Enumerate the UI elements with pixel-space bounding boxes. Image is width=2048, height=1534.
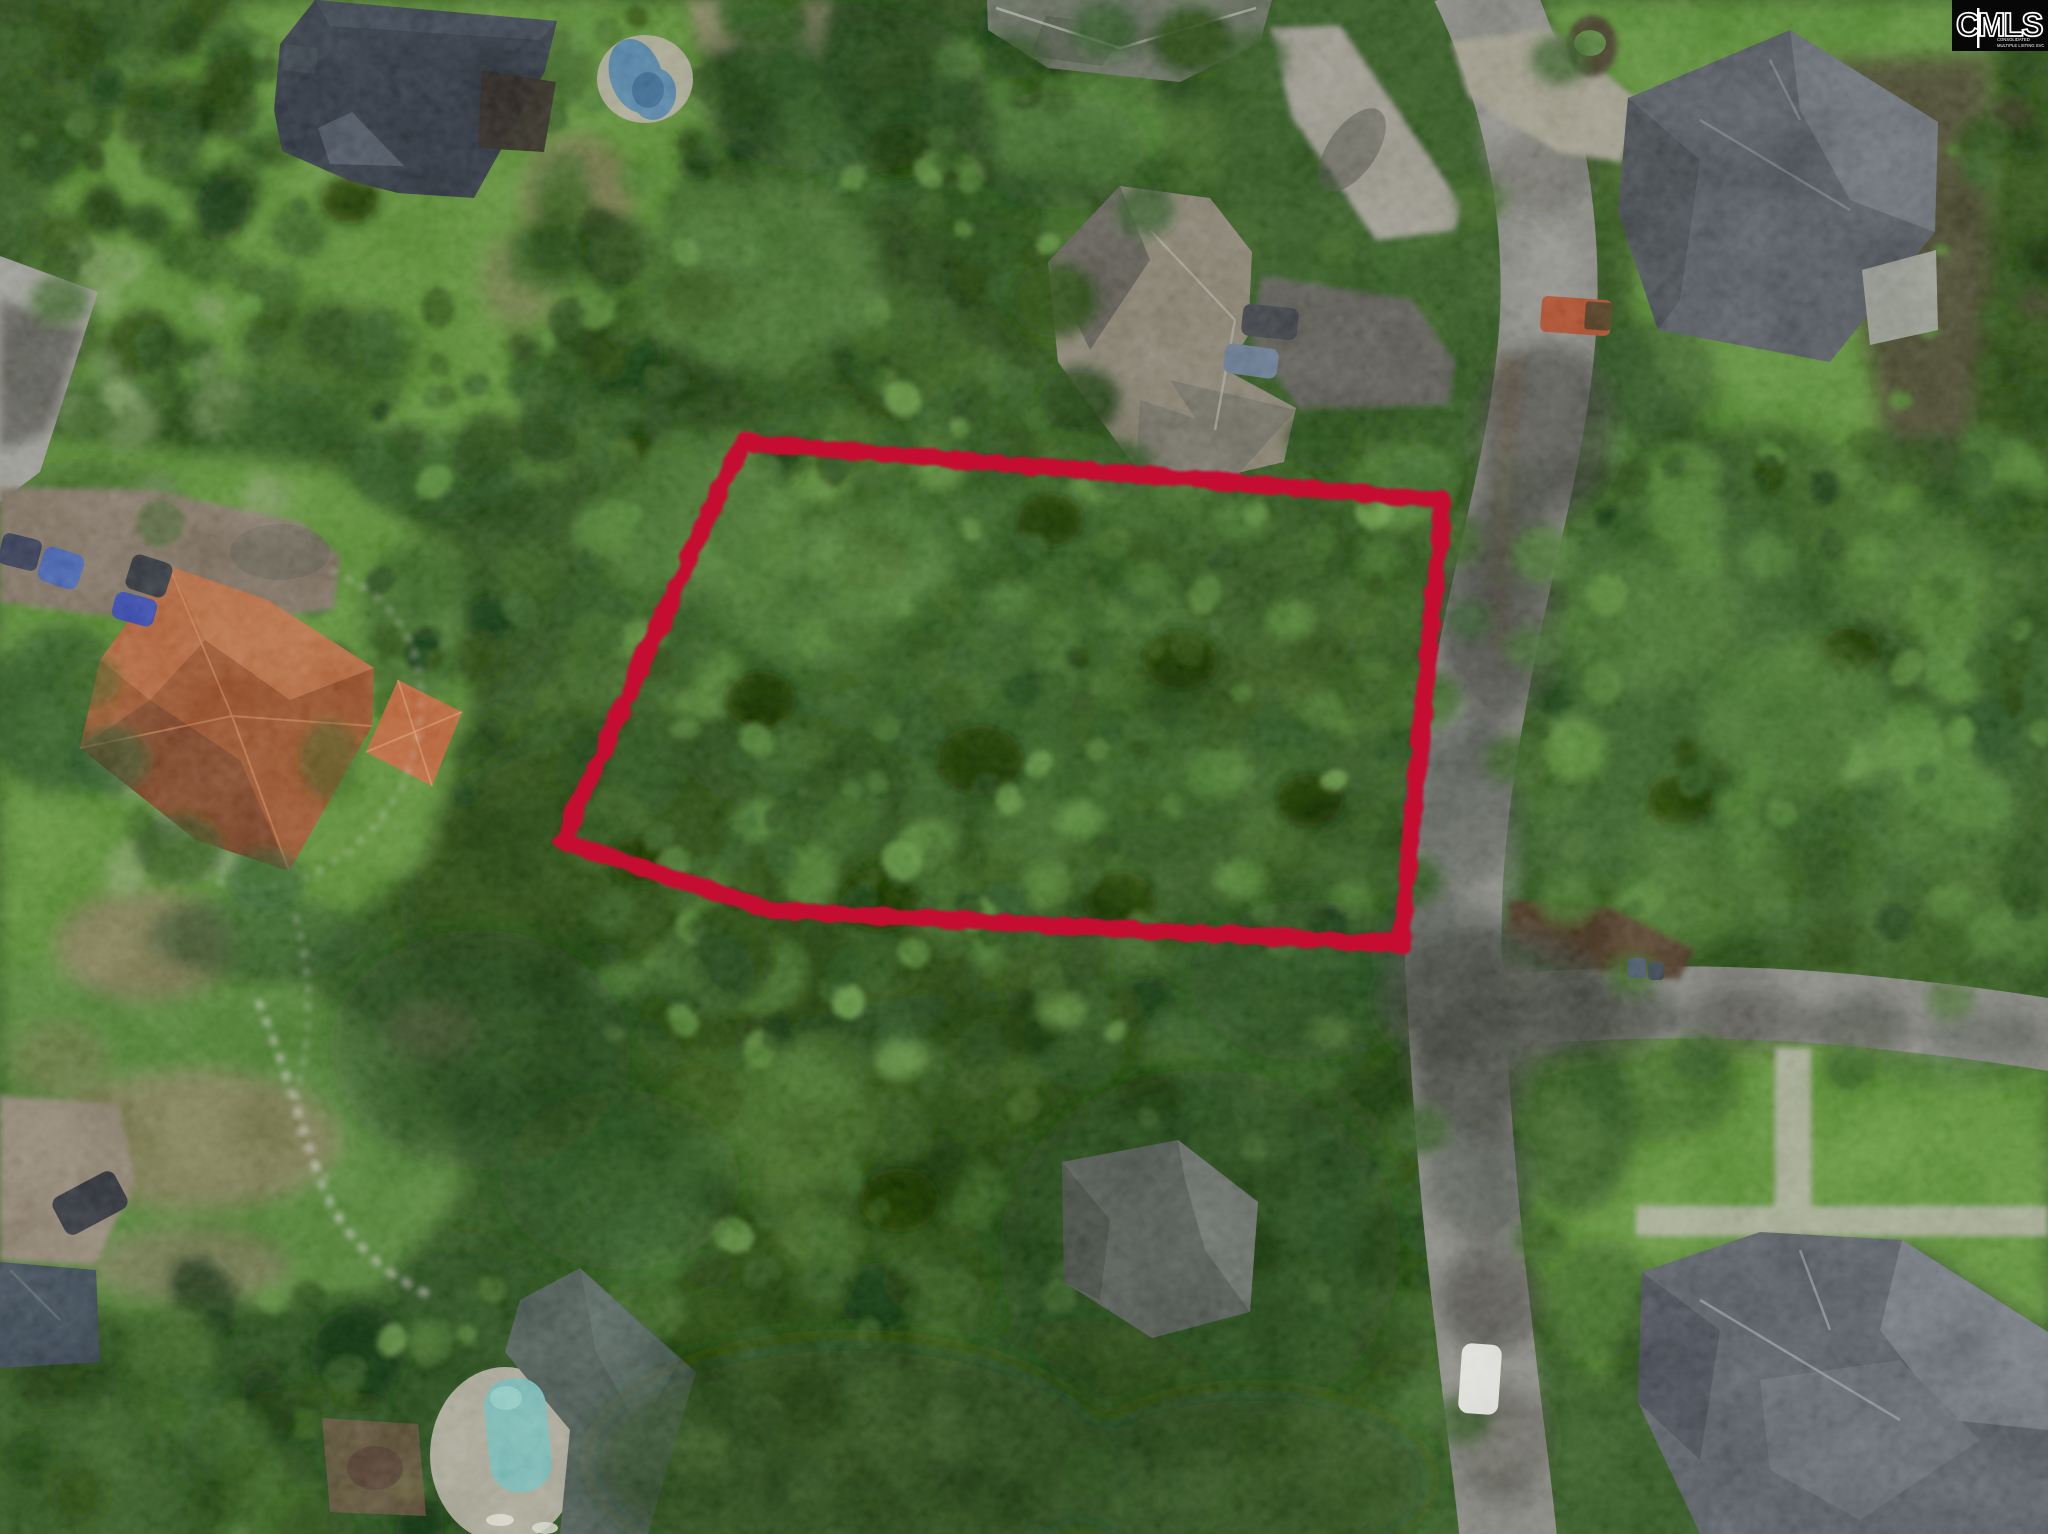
- svg-text:CONSOLIDATED: CONSOLIDATED: [1997, 37, 2030, 42]
- svg-text:MULTIPLE LISTING SVC: MULTIPLE LISTING SVC: [1997, 43, 2044, 48]
